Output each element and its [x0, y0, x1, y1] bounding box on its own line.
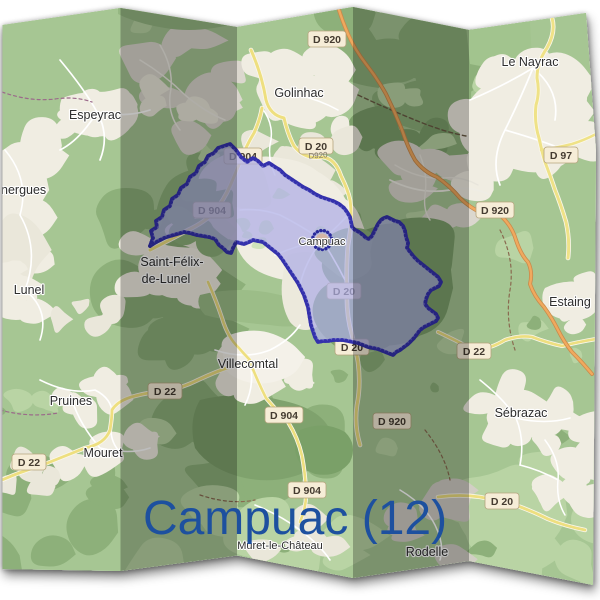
svg-text:D 22: D 22 — [18, 457, 40, 469]
svg-text:Campuac: Campuac — [298, 236, 346, 248]
svg-text:Sébrazac: Sébrazac — [495, 406, 548, 420]
svg-text:D920: D920 — [308, 150, 328, 160]
svg-text:Pruines: Pruines — [50, 394, 92, 408]
svg-text:Campuac (12): Campuac (12) — [143, 492, 447, 545]
svg-text:D 97: D 97 — [550, 150, 572, 162]
svg-text:nergues: nergues — [1, 183, 46, 197]
svg-text:D 920: D 920 — [313, 34, 341, 46]
svg-text:D 904: D 904 — [270, 410, 298, 422]
svg-text:Mouret: Mouret — [84, 446, 123, 460]
svg-text:Le Nayrac: Le Nayrac — [502, 55, 559, 69]
svg-text:D 20: D 20 — [491, 496, 513, 508]
svg-text:D 920: D 920 — [481, 205, 509, 217]
svg-text:Estaing: Estaing — [549, 295, 591, 309]
svg-text:Espeyrac: Espeyrac — [69, 108, 121, 122]
svg-text:Lunel: Lunel — [14, 283, 45, 297]
svg-text:Golinhac: Golinhac — [274, 86, 323, 100]
